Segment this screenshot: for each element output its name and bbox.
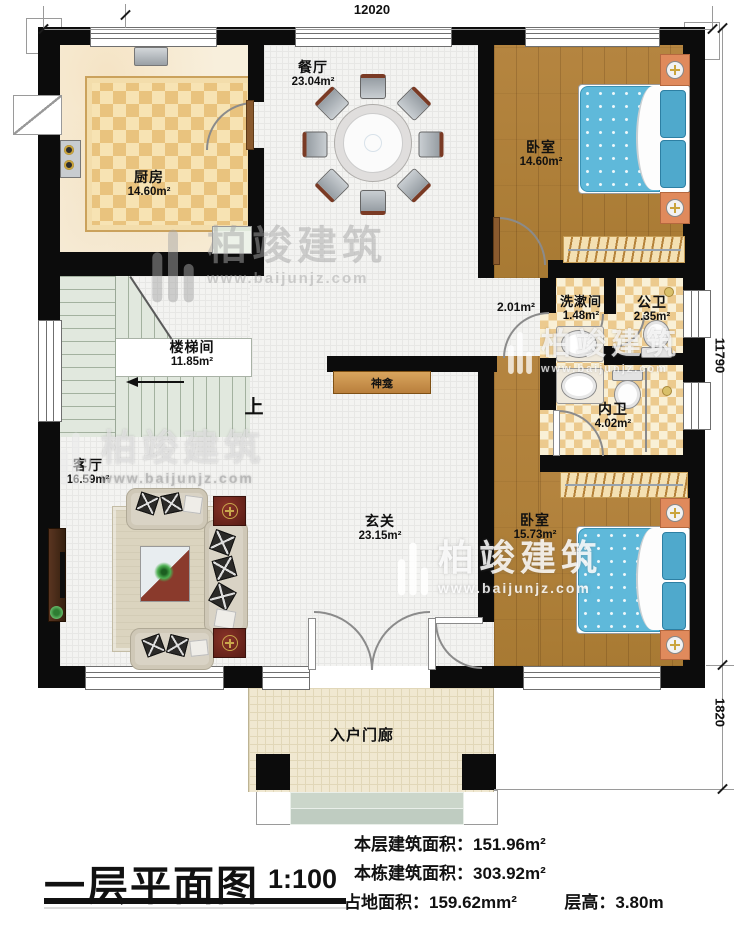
wall-segment	[478, 356, 494, 622]
private-wc-door-leaf	[553, 410, 560, 456]
pillow	[662, 582, 686, 630]
stairs-up-label: 上	[240, 392, 268, 419]
wall-segment	[683, 336, 705, 382]
toilet-bowl	[643, 320, 670, 349]
entry-door-leaf	[428, 618, 436, 670]
dimension-porch-value: 1820	[713, 683, 728, 743]
wall-segment	[540, 358, 556, 410]
fridge	[212, 226, 252, 254]
compass-ornament	[222, 635, 238, 651]
room-label-bedroom-top: 卧室 14.60m²	[501, 140, 581, 169]
coffee-table-plant	[154, 562, 174, 582]
side-table	[213, 496, 246, 526]
pillow	[660, 140, 686, 188]
floor-plan: 神龛 餐厅 23.04m² 厨	[0, 0, 750, 929]
pillow	[662, 532, 686, 580]
stairs-divider	[115, 276, 116, 437]
shrine-label: 神龛	[371, 375, 393, 391]
sofa-pillow	[183, 495, 203, 514]
nightstand-knob	[666, 636, 684, 654]
nightstand-knob	[666, 199, 684, 217]
kitchen-door-leaf	[246, 100, 254, 150]
nightstand	[660, 498, 690, 528]
dining-chair	[360, 190, 386, 215]
wall-segment	[38, 133, 60, 320]
porch-column-base	[462, 790, 498, 825]
wardrobe	[563, 236, 685, 263]
sofa-pillow	[160, 492, 183, 515]
porch-label: 入户门廊	[302, 724, 422, 745]
window	[295, 27, 452, 47]
stove-burner	[64, 145, 74, 155]
toilet-tank	[641, 347, 672, 358]
stat-land-area-and-height: 占地面积：159.62mm² 层高：3.80m	[344, 888, 664, 913]
wall-segment	[604, 346, 616, 365]
stairs-left-flight	[60, 276, 115, 437]
window	[523, 666, 661, 690]
wall-segment	[478, 45, 494, 278]
window	[683, 382, 711, 430]
window	[90, 27, 217, 47]
room-label-washroom: 洗漱间 1.48m²	[546, 295, 616, 322]
dining-chair	[303, 132, 328, 158]
extension-line	[494, 789, 734, 790]
stairs-direction-arrow	[126, 377, 138, 387]
nightstand	[660, 54, 690, 86]
room-label-stairwell: 楼梯间 11.85m²	[152, 340, 232, 369]
title-underline-thin	[44, 907, 346, 909]
wall-segment	[38, 252, 264, 276]
wall-segment	[540, 455, 705, 472]
room-label-private-wc: 内卫 4.02m²	[578, 402, 648, 431]
corridor-floor	[494, 356, 540, 666]
room-label-dining: 餐厅 23.04m²	[273, 60, 353, 89]
wardrobe	[560, 472, 688, 498]
compass-ornament	[222, 503, 238, 519]
window	[38, 320, 62, 422]
wall-segment	[38, 27, 60, 97]
sofa-pillow	[189, 639, 209, 657]
window	[262, 666, 310, 690]
dining-table-center	[364, 134, 382, 152]
wall-segment	[327, 356, 497, 372]
title-underline	[44, 898, 346, 904]
side-table	[213, 628, 246, 658]
shrine-shelf: 神龛	[333, 371, 431, 394]
pillow	[660, 90, 686, 138]
hall-area-label: 2.01m²	[478, 300, 554, 314]
room-label-foyer: 玄关 23.15m²	[340, 514, 420, 543]
room-label-living: 客厅 16.59m²	[48, 458, 128, 487]
wall-segment	[222, 666, 262, 688]
porch-column-base	[256, 790, 292, 825]
porch-step	[290, 808, 464, 825]
drawing-scale: 1:100	[268, 864, 337, 895]
kitchen-sink	[134, 47, 168, 66]
bed-sheet	[636, 528, 664, 630]
room-label-public-wc: 公卫 2.35m²	[617, 295, 687, 324]
bedroom-top-door-leaf	[493, 217, 500, 265]
entry-door-leaf	[308, 618, 316, 670]
wall-segment	[38, 666, 85, 688]
tv	[60, 552, 65, 598]
wall-segment	[248, 45, 264, 102]
porch-column	[462, 754, 496, 790]
nightstand-knob	[666, 61, 684, 79]
window	[525, 27, 660, 47]
dimension-line-top	[43, 29, 713, 30]
nightstand-knob	[666, 504, 684, 522]
stat-building-area: 本栋建筑面积：303.92m²	[354, 859, 546, 884]
room-label-kitchen: 厨房 14.60m²	[109, 170, 189, 199]
sofa-pillow	[214, 608, 237, 629]
wall-segment	[659, 666, 705, 688]
nightstand	[660, 192, 690, 224]
dimension-right-value: 11790	[713, 326, 728, 386]
floor-drain	[662, 386, 672, 396]
dining-chair	[419, 132, 444, 158]
nightstand	[660, 630, 690, 660]
plant	[50, 606, 63, 619]
porch-column	[256, 754, 290, 790]
room-label-bedroom-bottom: 卧室 15.73m²	[495, 513, 575, 542]
bedroom-bottom-door-leaf	[435, 617, 483, 624]
sink	[561, 372, 597, 400]
stairs-direction-line	[138, 381, 184, 383]
side-window-box	[13, 95, 62, 135]
stat-floor-area: 本层建筑面积：151.96m²	[354, 830, 546, 855]
kitchen-rug	[85, 76, 254, 232]
window	[683, 290, 711, 338]
stove-burner	[64, 160, 74, 170]
dimension-top-value: 12020	[330, 2, 414, 17]
dining-chair	[360, 74, 386, 99]
sink	[561, 330, 597, 358]
wall-segment	[430, 666, 523, 688]
